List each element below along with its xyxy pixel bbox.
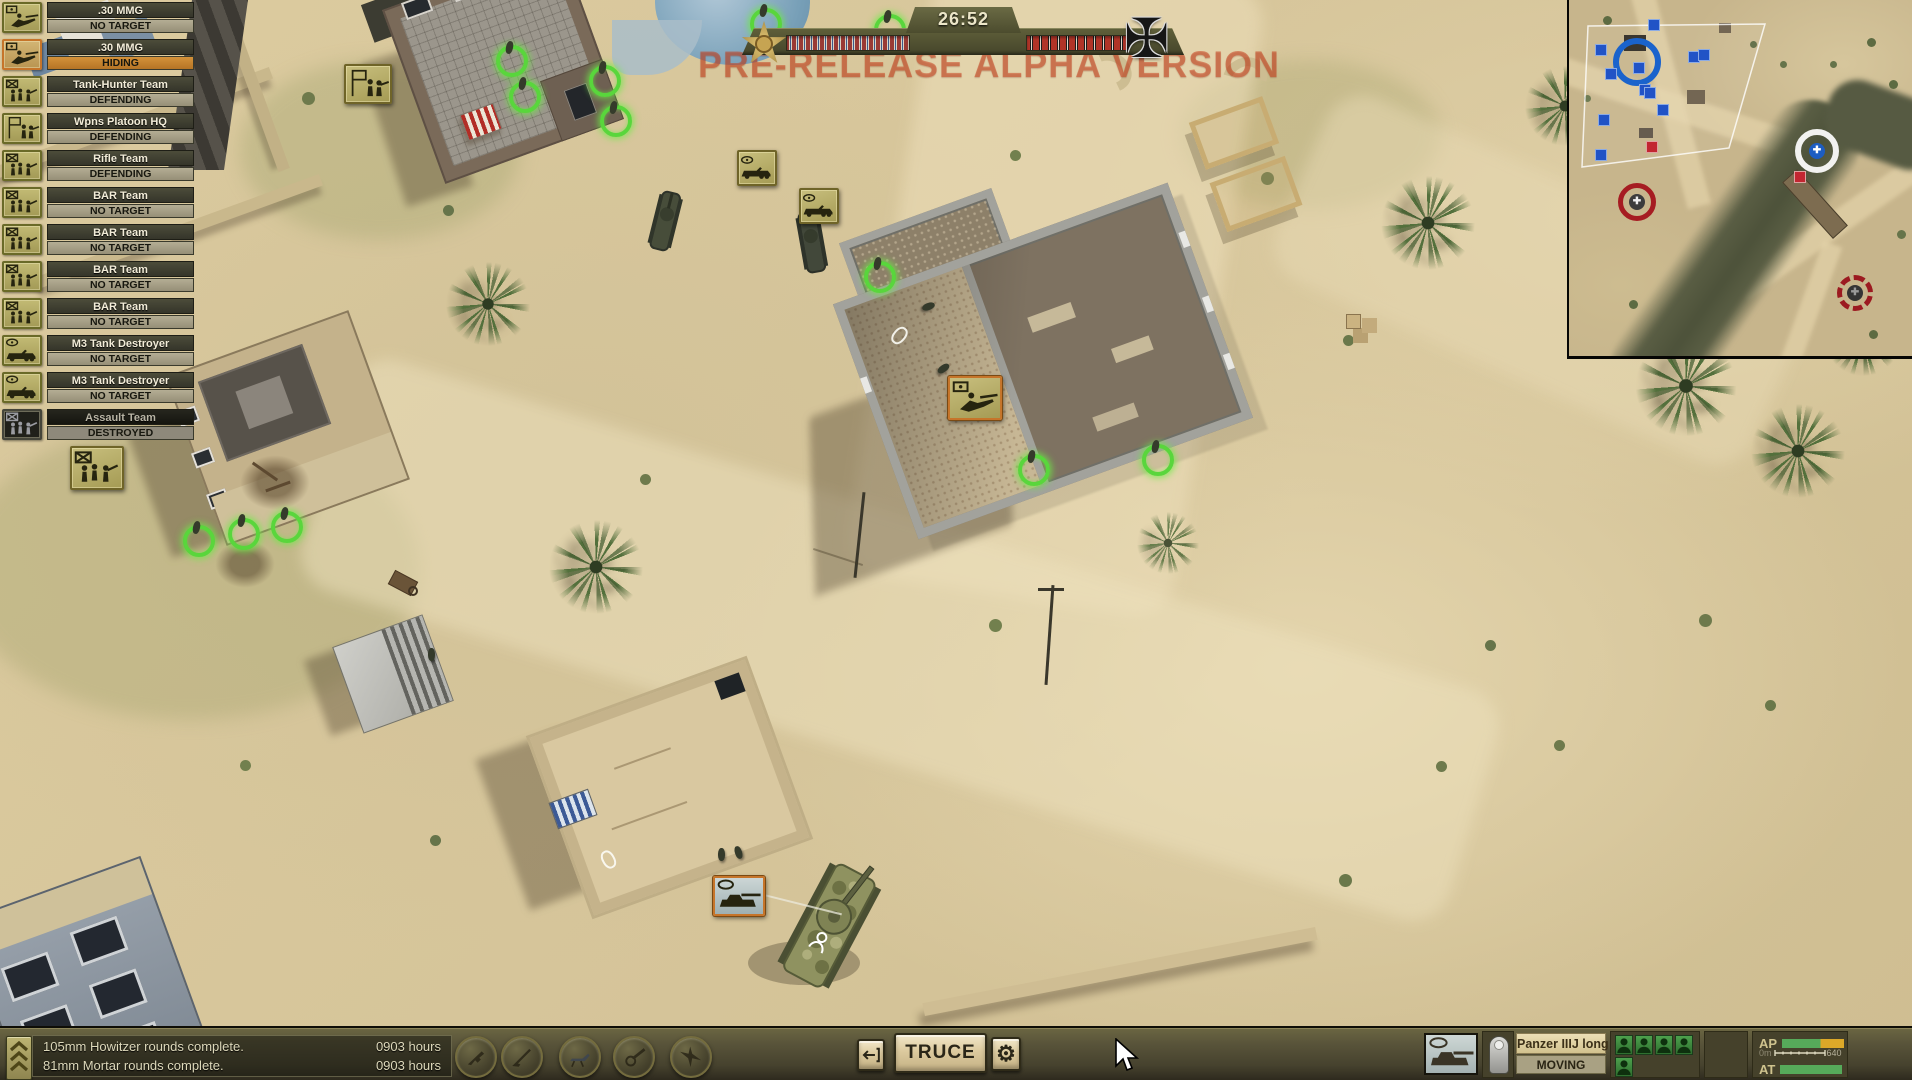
unit-icon[interactable] <box>2 187 42 218</box>
selection-ring <box>271 511 303 543</box>
unit-list-row[interactable]: BAR Team NO TARGET <box>2 261 198 292</box>
palm-tree <box>1750 404 1846 498</box>
support-dial-aircraft[interactable] <box>670 1036 712 1078</box>
panzer-tank[interactable] <box>742 845 912 1015</box>
selection-ring <box>1142 444 1174 476</box>
palm-tree <box>445 262 531 346</box>
crew-member-icon <box>1635 1035 1653 1055</box>
at-ammo-label: AT <box>1759 1062 1775 1077</box>
soldier[interactable] <box>428 648 435 661</box>
minimap-friendly-unit <box>1644 87 1656 99</box>
unit-name: BAR Team <box>47 187 194 203</box>
selected-unit-name: Panzer IIIJ long <box>1516 1033 1606 1054</box>
crates <box>1346 314 1361 329</box>
minimap-objective-core: ✚ <box>1809 143 1825 159</box>
unit-status: HIDING <box>47 56 194 70</box>
unit-name: Assault Team <box>47 409 194 425</box>
soldier[interactable] <box>718 848 725 861</box>
rank-insignia-panel <box>1482 1031 1514 1078</box>
selected-unit-thumbnail[interactable] <box>1424 1033 1478 1075</box>
minimap-objective-core: ✚ <box>1629 194 1645 210</box>
ap-ammo-bar <box>1782 1039 1844 1048</box>
unit-status: NO TARGET <box>47 315 194 329</box>
cart-wheel <box>408 586 418 596</box>
palm-tree <box>548 520 644 614</box>
unit-name: .30 MMG <box>47 39 194 55</box>
unit-name: BAR Team <box>47 224 194 240</box>
floating-unit-icon[interactable] <box>344 64 392 104</box>
unit-list-row[interactable]: BAR Team NO TARGET <box>2 187 198 218</box>
selection-ring <box>509 81 541 113</box>
unit-name: BAR Team <box>47 261 194 277</box>
crew-member-icon <box>1615 1057 1633 1077</box>
palm-tree <box>1136 512 1200 574</box>
unit-icon[interactable] <box>2 372 42 403</box>
selection-ring <box>1018 454 1050 486</box>
unit-list-row[interactable]: Assault Team DESTROYED <box>2 409 198 440</box>
unit-icon[interactable] <box>2 76 42 107</box>
unit-status: NO TARGET <box>47 241 194 255</box>
unit-icon[interactable] <box>2 409 42 440</box>
unit-status: DEFENDING <box>47 130 194 144</box>
unit-icon[interactable] <box>2 39 42 70</box>
support-dial-smg[interactable] <box>455 1036 497 1078</box>
floating-unit-icon[interactable] <box>713 876 765 916</box>
unit-name: Wpns Platoon HQ <box>47 113 194 129</box>
minimap-friendly-unit <box>1595 149 1607 161</box>
settings-gear-button[interactable]: ⚙ <box>991 1037 1021 1071</box>
floating-unit-icon[interactable] <box>737 150 777 186</box>
debris <box>240 455 310 510</box>
unit-status: NO TARGET <box>47 352 194 366</box>
command-bar: 105mm Howitzer rounds complete.0903 hour… <box>0 1026 1912 1080</box>
selection-ring <box>864 261 896 293</box>
support-dial-rifle[interactable] <box>501 1036 543 1078</box>
unit-name: Tank-Hunter Team <box>47 76 194 92</box>
rank-insignia <box>1489 1036 1509 1074</box>
unit-status: NO TARGET <box>47 204 194 218</box>
unit-list-row[interactable]: .30 MMG NO TARGET <box>2 2 198 33</box>
selection-ring <box>496 45 528 77</box>
unit-icon[interactable] <box>2 113 42 144</box>
minimap-friendly-unit <box>1648 19 1660 31</box>
game-window: { "watermark": "PRE-RELEASE ALPHA VERSIO… <box>0 0 1912 1080</box>
unit-status: DEFENDING <box>47 93 194 107</box>
unit-list-row[interactable]: .30 MMG HIDING <box>2 39 198 70</box>
unit-list-row[interactable]: M3 Tank Destroyer NO TARGET <box>2 372 198 403</box>
exit-button[interactable] <box>857 1039 885 1071</box>
truce-button[interactable]: TRUCE <box>894 1033 987 1073</box>
unit-icon[interactable] <box>2 150 42 181</box>
unit-status: NO TARGET <box>47 19 194 33</box>
unit-status: NO TARGET <box>47 389 194 403</box>
ammo-panel: AP 0m 640 AT <box>1752 1031 1848 1078</box>
selection-ring <box>600 105 632 137</box>
unit-icon[interactable] <box>2 298 42 329</box>
unit-name: BAR Team <box>47 298 194 314</box>
dome-wall <box>612 20 702 75</box>
minimap-enemy-unit <box>1646 141 1658 153</box>
minimap-friendly-unit <box>1598 114 1610 126</box>
unit-name: Rifle Team <box>47 150 194 166</box>
range-ruler <box>1774 1048 1826 1058</box>
stone-wall <box>922 927 1317 1016</box>
unit-list-row[interactable]: Rifle Team DEFENDING <box>2 150 198 181</box>
rank-chevron-button[interactable] <box>6 1036 32 1080</box>
crew-member-icon <box>1675 1035 1693 1055</box>
minimap[interactable]: ✚✚✚ <box>1567 0 1912 359</box>
crew-member-icon <box>1655 1035 1673 1055</box>
unit-status: DESTROYED <box>47 426 194 440</box>
lamp-crossbar <box>1038 588 1064 591</box>
minimap-friendly-unit <box>1595 44 1607 56</box>
minimap-friendly-unit <box>1657 104 1669 116</box>
unit-name: M3 Tank Destroyer <box>47 335 194 351</box>
unit-status: NO TARGET <box>47 278 194 292</box>
unit-icon[interactable] <box>2 2 42 33</box>
selected-unit-status: MOVING <box>1516 1055 1606 1074</box>
minimap-objective-core: ✚ <box>1847 285 1863 301</box>
palm-tree <box>1380 176 1476 270</box>
selection-ring <box>183 525 215 557</box>
minimap-friendly-unit <box>1698 49 1710 61</box>
minimap-objective: ✚ <box>1618 183 1656 221</box>
selection-ring <box>874 14 906 46</box>
unit-list-row[interactable]: BAR Team NO TARGET <box>2 224 198 255</box>
unit-icon[interactable] <box>2 224 42 255</box>
unit-list-row[interactable]: Wpns Platoon HQ DEFENDING <box>2 113 198 144</box>
support-dial-mg[interactable] <box>559 1036 601 1078</box>
selection-ring <box>750 8 782 40</box>
minimap-friendly-unit <box>1605 68 1617 80</box>
unit-icon[interactable] <box>2 335 42 366</box>
unit-list-row[interactable]: M3 Tank Destroyer NO TARGET <box>2 335 198 366</box>
range-start-label: 0m <box>1759 1048 1772 1058</box>
crew-panel <box>1610 1031 1700 1078</box>
floating-unit-icon[interactable] <box>70 446 124 490</box>
minimap-objective: ✚ <box>1837 275 1873 311</box>
crew-member-icon <box>1615 1035 1633 1055</box>
unit-list-row[interactable]: BAR Team NO TARGET <box>2 298 198 329</box>
unit-list-row[interactable]: Tank-Hunter Team DEFENDING <box>2 76 198 107</box>
unit-status: DEFENDING <box>47 167 194 181</box>
watermark: PRE-RELEASE ALPHA VERSION <box>698 44 1280 86</box>
floating-unit-icon[interactable] <box>948 376 1002 420</box>
minimap-friendly-unit <box>1633 62 1645 74</box>
selection-ring <box>589 65 621 97</box>
unit-list: .30 MMG NO TARGET .30 MMG HIDING Tank-Hu… <box>2 2 198 446</box>
log-message: 81mm Mortar rounds complete.0903 hours <box>43 1056 441 1075</box>
mouse-cursor <box>1114 1038 1140 1074</box>
log-message: 105mm Howitzer rounds complete.0903 hour… <box>43 1037 441 1056</box>
armored-car[interactable] <box>640 183 690 261</box>
selection-ring <box>228 518 260 550</box>
minimap-objective: ✚ <box>1795 129 1839 173</box>
unit-name: .30 MMG <box>47 2 194 18</box>
message-log[interactable]: 105mm Howitzer rounds complete.0903 hour… <box>32 1035 452 1077</box>
unit-name: M3 Tank Destroyer <box>47 372 194 388</box>
empty-panel <box>1704 1031 1748 1078</box>
support-dial-artillery[interactable] <box>613 1036 655 1078</box>
minimap-enemy-unit <box>1794 171 1806 183</box>
at-ammo-bar <box>1780 1065 1842 1074</box>
floating-unit-icon[interactable] <box>799 188 839 224</box>
unit-icon[interactable] <box>2 261 42 292</box>
range-end-label: 640 <box>1827 1048 1842 1058</box>
